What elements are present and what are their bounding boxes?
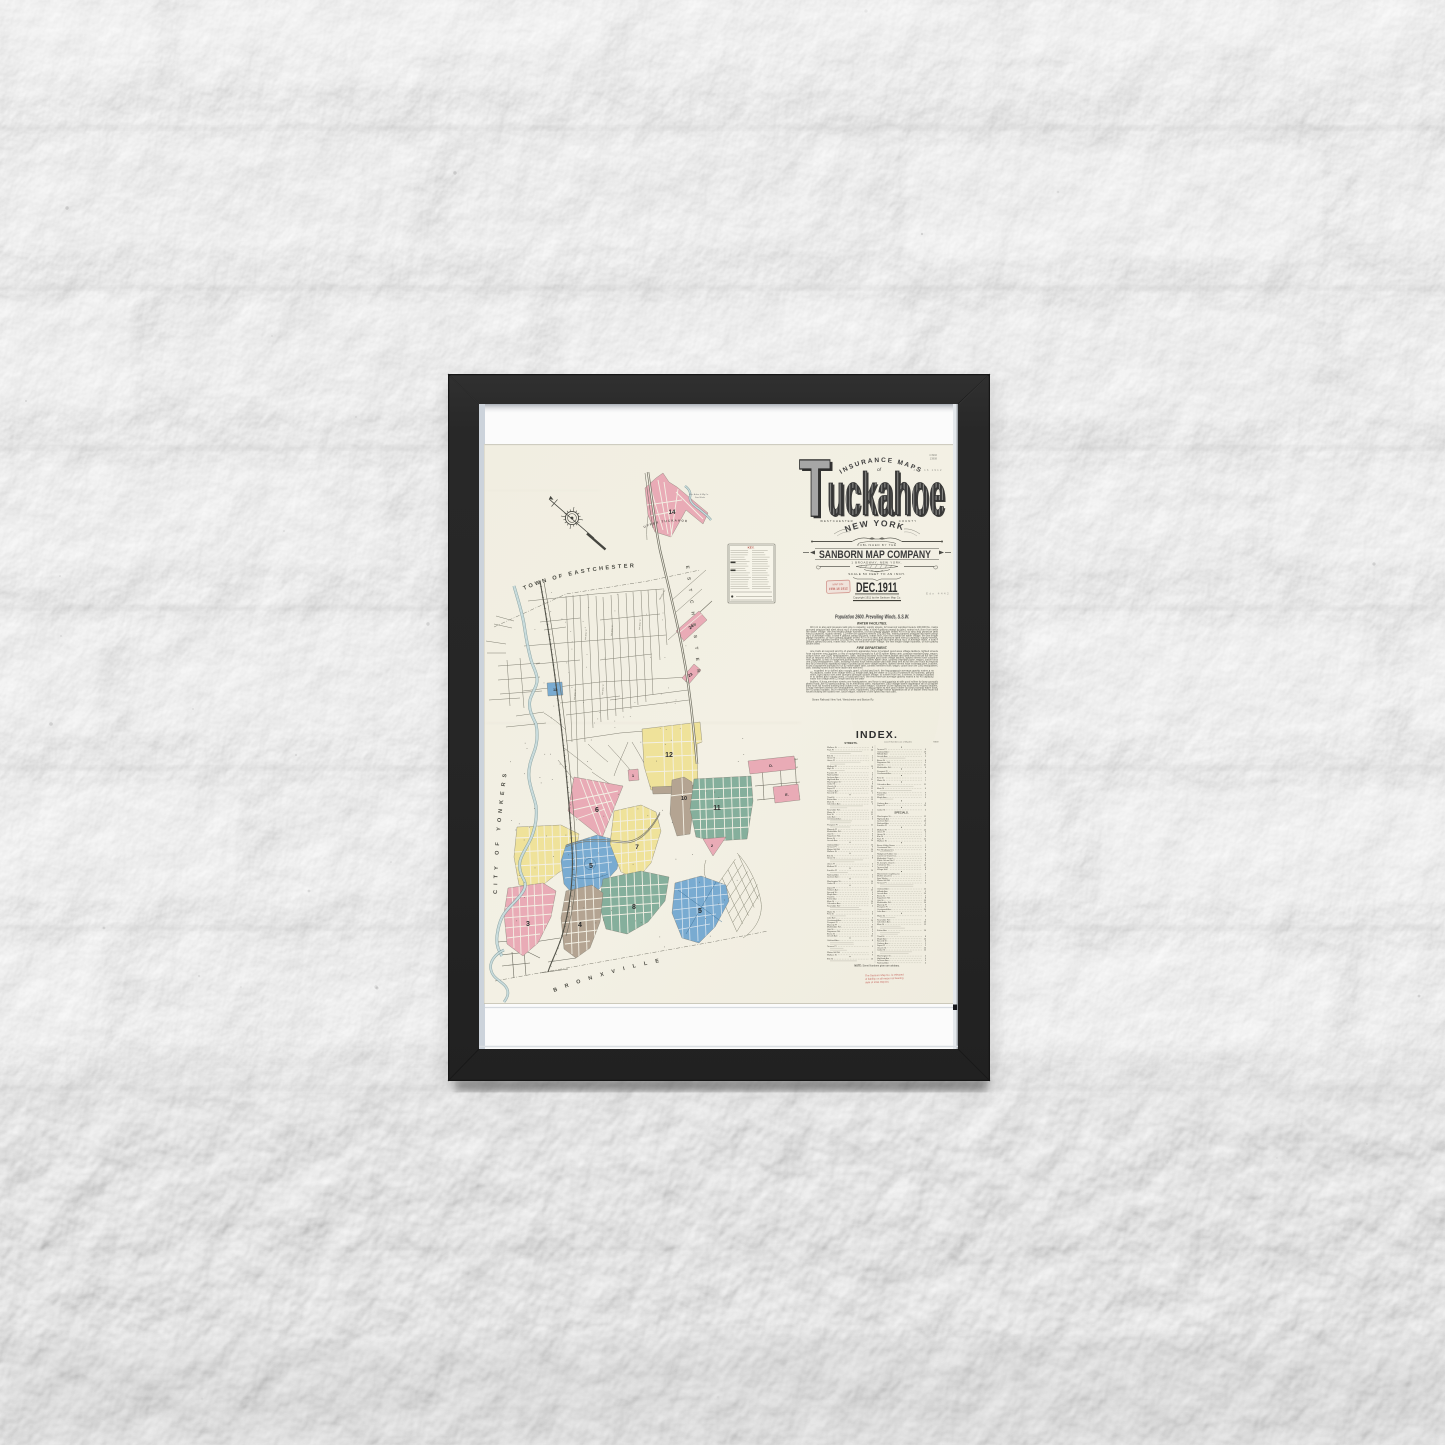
svg-text:5: 5 xyxy=(698,908,702,915)
svg-text:FIRE DEPARTMENT.: FIRE DEPARTMENT. xyxy=(857,646,888,650)
svg-text:5: 5 xyxy=(589,863,593,870)
svg-text:Union Pl: Union Pl xyxy=(827,760,835,762)
svg-text:Franklin Pl: Franklin Pl xyxy=(877,824,887,827)
svg-text:Lincoln Ave: Lincoln Ave xyxy=(827,839,838,842)
svg-text:Main St: Main St xyxy=(877,923,884,926)
svg-text:SPECIALS.: SPECIALS. xyxy=(894,810,908,814)
svg-text:SCALE 50 FEET TO AN INCH.: SCALE 50 FEET TO AN INCH. xyxy=(848,572,905,576)
svg-text:Second St: Second St xyxy=(827,792,837,795)
svg-text:WATER FACILITIES.: WATER FACILITIES. xyxy=(857,622,887,626)
svg-text:4 3902: 4 3902 xyxy=(929,453,937,457)
svg-text:Prospect Pl: Prospect Pl xyxy=(827,824,838,827)
svg-text:calls, building housed hook fr: calls, building housed hook frame ladder… xyxy=(806,667,863,670)
svg-text:Population 2600. Prevailing Wi: Population 2600. Prevailing Winds, S.S.W… xyxy=(835,615,909,621)
svg-text:double drilled: double drilled xyxy=(806,643,821,646)
svg-text:1 BROADWAY, NEW YORK.: 1 BROADWAY, NEW YORK. xyxy=(851,560,902,564)
svg-text:Scarsdale Rd: Scarsdale Rd xyxy=(827,904,840,907)
svg-text:NOTE: Street Numbers given are: NOTE: Street Numbers given are arbitrary… xyxy=(854,965,900,968)
svg-text:Depot Pl: Depot Pl xyxy=(877,804,886,807)
svg-text:Lower! Numbers are of Maplets: Lower! Numbers are of Maplets xyxy=(884,740,912,743)
svg-text:Wallace St: Wallace St xyxy=(827,953,837,956)
svg-text:4: 4 xyxy=(578,922,582,929)
svg-text:FEB 16 1912: FEB 16 1912 xyxy=(829,586,848,591)
svg-text:Copyright 1911 by the Sanborn: Copyright 1911 by the Sanborn Map Co. xyxy=(853,596,901,600)
svg-text:INDEX.: INDEX. xyxy=(856,729,898,741)
svg-text:14: 14 xyxy=(669,510,676,516)
svg-text:STREETS.: STREETS. xyxy=(844,741,857,745)
svg-text:Wallace St: Wallace St xyxy=(877,840,887,843)
svg-text:Cedar St: Cedar St xyxy=(877,949,886,952)
svg-text:Midland Pl: Midland Pl xyxy=(827,866,837,868)
svg-text:Crestwood Ave: Crestwood Ave xyxy=(827,818,842,821)
svg-text:10: 10 xyxy=(681,796,687,802)
svg-text:13808: 13808 xyxy=(930,456,938,460)
svg-text:Crestwood Ave: Crestwood Ave xyxy=(877,772,892,775)
svg-text:Terrace Pl: Terrace Pl xyxy=(827,945,837,948)
svg-text:Wm. Arthur & Mfg Co.: Wm. Arthur & Mfg Co. xyxy=(689,493,709,496)
svg-text:High St: High St xyxy=(827,767,834,770)
svg-text:Main St: Main St xyxy=(877,787,884,790)
svg-text:SANBORN MAP COMPANY: SANBORN MAP COMPANY xyxy=(819,549,932,561)
svg-text:Steam Railroad: New York, West: Steam Railroad: New York, Westchester an… xyxy=(812,699,874,702)
svg-text:Columbus Ave: Columbus Ave xyxy=(877,783,891,786)
svg-text:Water St: Water St xyxy=(877,914,885,917)
svg-text:Columbus Ave: Columbus Ave xyxy=(827,803,841,806)
svg-text:Fire Headquarters: Fire Headquarters xyxy=(877,848,894,851)
svg-text:Park Pl: Park Pl xyxy=(827,748,834,751)
svg-text:mains from village wells 12 le: mains from village wells 12 length tank … xyxy=(810,678,865,681)
svg-text:KEY.: KEY. xyxy=(748,546,755,550)
svg-text:Cedar St: Cedar St xyxy=(877,808,886,811)
svg-text:Water St: Water St xyxy=(877,779,885,782)
svg-text:PUBLISHED BY THE: PUBLISHED BY THE xyxy=(857,543,896,547)
svg-text:13: 13 xyxy=(553,688,557,692)
svg-text:Oakland Ave: Oakland Ave xyxy=(827,939,840,942)
svg-text:Franklin Pl: Franklin Pl xyxy=(827,869,837,872)
svg-text:D.: D. xyxy=(769,764,773,768)
svg-text:Maple Ave: Maple Ave xyxy=(877,796,888,799)
svg-text:Lincoln Ave: Lincoln Ave xyxy=(877,755,888,758)
svg-text:Village Hall: Village Hall xyxy=(877,869,888,871)
svg-text:6: 6 xyxy=(595,807,599,814)
svg-text:Elm St: Elm St xyxy=(827,958,834,961)
svg-text:date of 1911 Reprint.: date of 1911 Reprint. xyxy=(865,980,889,985)
svg-text:Wallace St: Wallace St xyxy=(827,850,837,853)
svg-text:Lincoln Ave: Lincoln Ave xyxy=(827,935,838,938)
svg-text:gallons owned by used, mains i: gallons owned by used, mains inch, from … xyxy=(806,641,939,644)
svg-text:Cedar St: Cedar St xyxy=(827,882,836,885)
svg-text:8: 8 xyxy=(632,904,636,911)
svg-text:Terrace Pl: Terrace Pl xyxy=(877,882,887,885)
svg-text:housed building bell located m: housed building bell located men, cotton… xyxy=(806,691,897,694)
svg-text:First St: First St xyxy=(827,913,834,916)
svg-text:Jackson Ave: Jackson Ave xyxy=(827,876,839,879)
svg-text:WESTCHESTER: WESTCHESTER xyxy=(820,519,854,523)
svg-text:uckahoe: uckahoe xyxy=(827,461,945,528)
svg-text:11: 11 xyxy=(713,805,721,812)
svg-text:Grove St: Grove St xyxy=(827,857,836,860)
svg-text:3: 3 xyxy=(526,921,530,928)
svg-text:7: 7 xyxy=(635,844,639,851)
svg-text:Edn 4442: Edn 4442 xyxy=(926,592,950,596)
svg-text:Fisher Ave: Fisher Ave xyxy=(877,929,888,932)
svg-text:Lake Ave: Lake Ave xyxy=(877,910,886,913)
svg-text:E.: E. xyxy=(785,793,788,797)
svg-text:Saw Works: Saw Works xyxy=(695,497,705,499)
svg-text:DEC.1911: DEC.1911 xyxy=(856,580,898,595)
svg-text:PAGE: PAGE xyxy=(933,740,939,743)
svg-text:Marbledale Rd: Marbledale Rd xyxy=(877,766,891,769)
svg-text:12: 12 xyxy=(665,752,673,759)
